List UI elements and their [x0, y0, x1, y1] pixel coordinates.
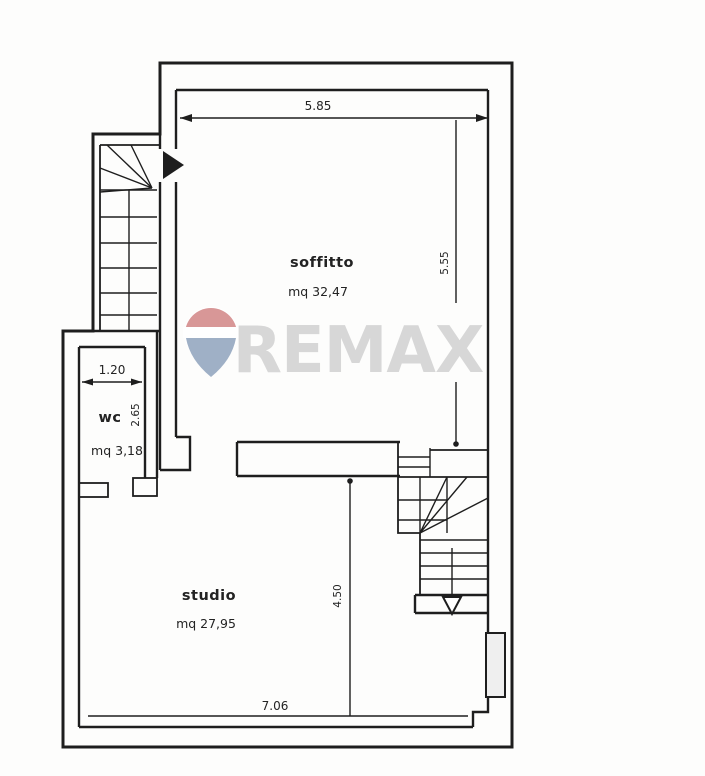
- room-area-studio: mq 27,95: [176, 616, 236, 631]
- dimension-studio-depth: 4.50: [332, 478, 353, 716]
- inner-walls: [63, 90, 488, 727]
- middle-wall: [237, 442, 488, 477]
- dimension-label: 5.55: [439, 251, 451, 274]
- room-name-wc: wc: [99, 410, 122, 426]
- stair-down-arrow-icon: [443, 597, 461, 614]
- floor-plan-drawing: 5.85 5.55 1.20 2.65 4.50 7.06 so: [0, 0, 705, 776]
- room-name-studio: studio: [182, 588, 236, 604]
- lower-staircase: [398, 442, 488, 614]
- dimension-wc-depth: 2.65: [130, 403, 142, 426]
- room-name-soffitto: soffitto: [290, 255, 354, 271]
- dimension-soffitto-depth: 5.55: [439, 120, 459, 447]
- dimensions: 5.85 5.55 1.20 2.65 4.50 7.06: [82, 99, 488, 716]
- dimension-label: 1.20: [99, 363, 126, 377]
- dimension-label: 4.50: [332, 584, 344, 607]
- room-area-soffitto: mq 32,47: [288, 284, 348, 299]
- dimension-label: 5.85: [305, 99, 332, 113]
- soffitto-left-wall: [160, 90, 190, 470]
- upper-staircase: [100, 145, 184, 330]
- stair-direction-arrow-icon: [163, 151, 184, 179]
- room-area-wc: mq 3,18: [91, 443, 143, 458]
- right-wall-door-recess: [486, 633, 505, 697]
- dimension-studio-width: 7.06: [88, 699, 468, 716]
- dimension-label: 7.06: [262, 699, 289, 713]
- dimension-wc-width: 1.20: [82, 363, 142, 386]
- floor-plan-sheet: 5.85 5.55 1.20 2.65 4.50 7.06 so: [0, 0, 705, 776]
- dimension-soffitto-width: 5.85: [180, 99, 488, 122]
- watermark-logo-text: REMAX: [233, 314, 484, 388]
- remax-watermark: REMAX: [178, 303, 484, 388]
